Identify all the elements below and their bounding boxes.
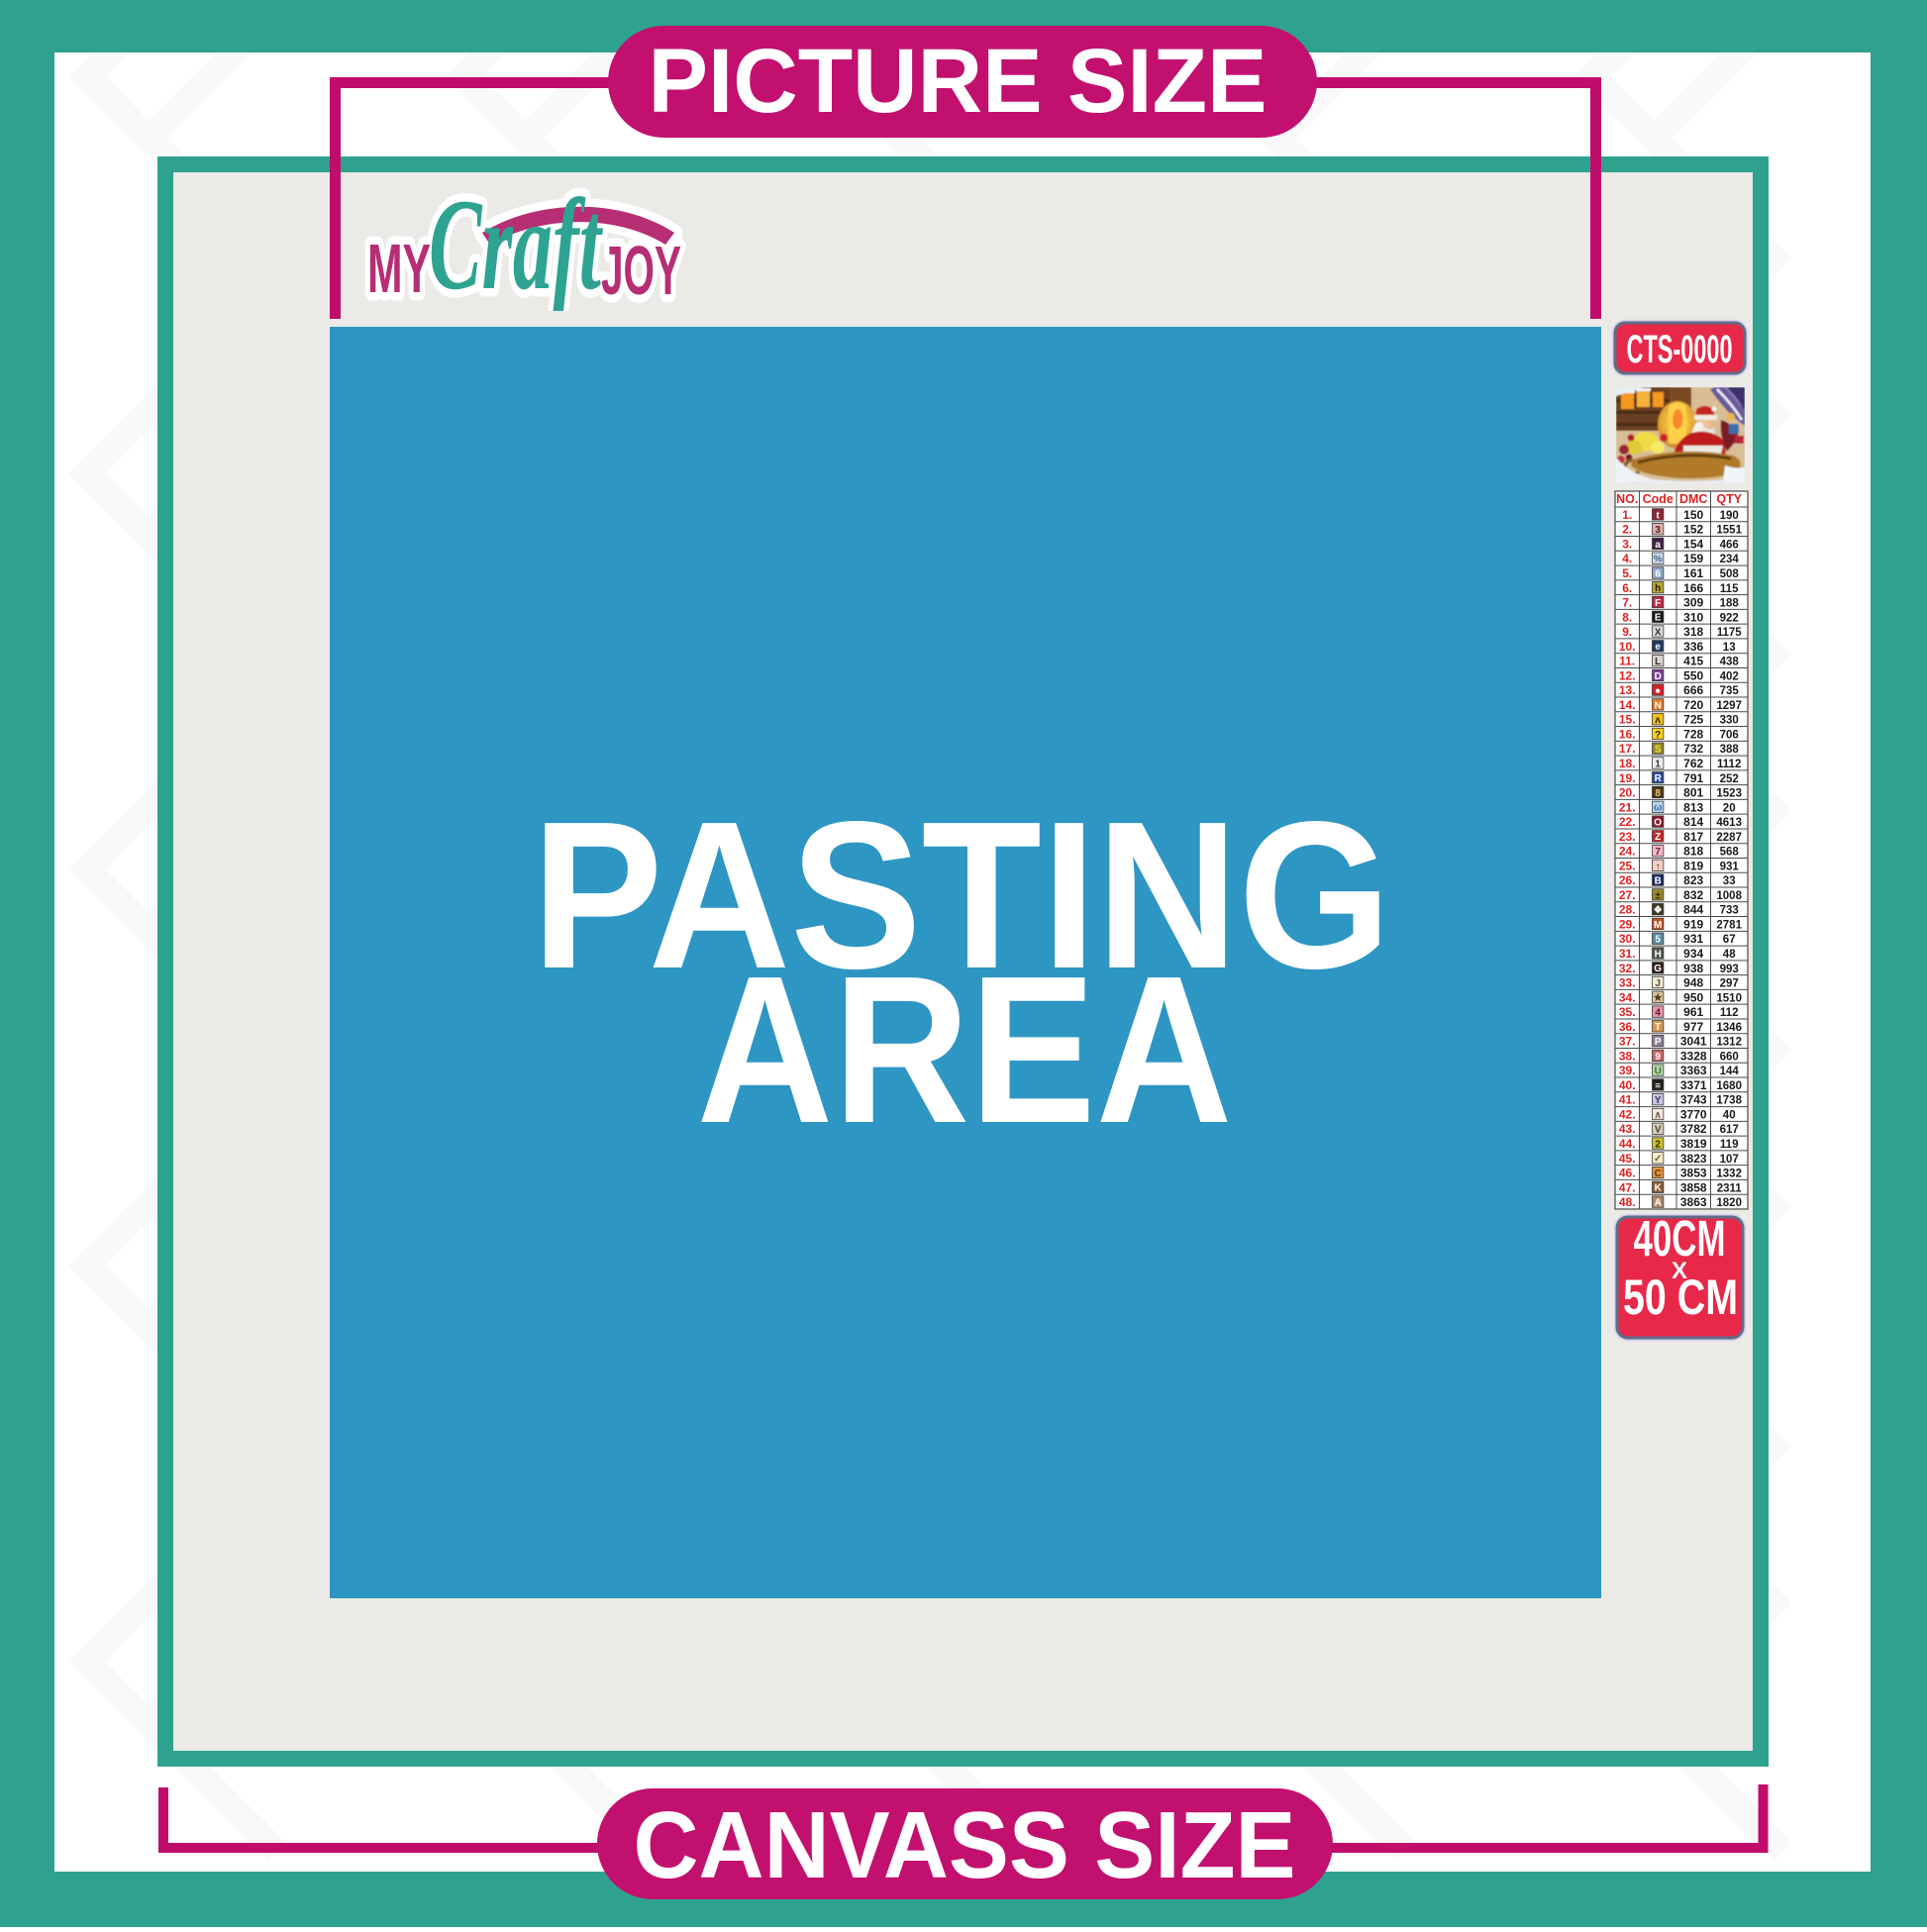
svg-text:818: 818 (1683, 845, 1703, 859)
svg-text:e: e (1655, 642, 1661, 653)
svg-text:20: 20 (1723, 802, 1736, 814)
svg-text:MY: MY (367, 230, 431, 307)
svg-text:1820: 1820 (1716, 1197, 1742, 1209)
svg-text:3770: 3770 (1680, 1108, 1707, 1122)
svg-text:Z: Z (1655, 832, 1661, 843)
svg-text:1008: 1008 (1716, 890, 1742, 902)
svg-text:P: P (1655, 1037, 1662, 1048)
svg-text:T: T (1655, 1022, 1661, 1033)
svg-text:297: 297 (1720, 978, 1739, 990)
svg-text:38.: 38. (1619, 1049, 1636, 1063)
svg-text:Code: Code (1643, 492, 1673, 506)
svg-text:568: 568 (1720, 847, 1740, 859)
svg-text:40.: 40. (1619, 1078, 1636, 1092)
svg-text:814: 814 (1683, 815, 1703, 829)
svg-text:3371: 3371 (1680, 1078, 1707, 1092)
svg-text:310: 310 (1683, 610, 1703, 624)
svg-text:Y: Y (1655, 1095, 1662, 1106)
svg-text:3.: 3. (1622, 537, 1632, 551)
svg-text:725: 725 (1683, 713, 1703, 727)
svg-text:3328: 3328 (1680, 1049, 1707, 1063)
svg-text:159: 159 (1683, 552, 1703, 565)
svg-text:2: 2 (1655, 1139, 1661, 1150)
svg-text:30.: 30. (1619, 932, 1636, 946)
svg-text:G: G (1654, 964, 1662, 974)
svg-text:6: 6 (1655, 568, 1661, 579)
svg-text:48: 48 (1723, 949, 1736, 961)
svg-text:4613: 4613 (1716, 817, 1742, 829)
svg-text:1332: 1332 (1716, 1169, 1742, 1180)
svg-text:801: 801 (1683, 786, 1703, 800)
svg-text:44.: 44. (1619, 1137, 1636, 1151)
svg-text:10.: 10. (1619, 640, 1636, 654)
svg-text:617: 617 (1720, 1124, 1739, 1136)
svg-text:U: U (1655, 1067, 1662, 1077)
svg-text:813: 813 (1683, 800, 1703, 814)
svg-text:Craft: Craft (429, 171, 603, 317)
svg-text:45.: 45. (1619, 1152, 1636, 1166)
svg-text:17.: 17. (1619, 742, 1636, 756)
svg-text:43.: 43. (1619, 1122, 1636, 1136)
svg-text:388: 388 (1720, 744, 1740, 756)
svg-text:≡: ≡ (1655, 1080, 1661, 1091)
svg-text:AREA: AREA (697, 932, 1233, 1167)
svg-text:166: 166 (1683, 581, 1703, 595)
svg-text:8.: 8. (1622, 610, 1632, 624)
svg-text:37.: 37. (1619, 1035, 1636, 1049)
svg-text:6.: 6. (1622, 581, 1632, 595)
svg-text:1738: 1738 (1716, 1095, 1742, 1107)
svg-text:550: 550 (1683, 668, 1703, 682)
svg-text:31.: 31. (1619, 947, 1636, 961)
svg-text:D: D (1655, 671, 1662, 682)
svg-text:1551: 1551 (1716, 525, 1742, 537)
svg-text:%: % (1654, 555, 1663, 565)
svg-text:252: 252 (1720, 773, 1739, 785)
svg-text:14.: 14. (1619, 698, 1636, 712)
svg-text:67: 67 (1723, 934, 1736, 946)
svg-text:234: 234 (1720, 554, 1740, 565)
svg-text:N: N (1655, 700, 1662, 711)
svg-text:150: 150 (1683, 508, 1703, 522)
svg-text:★: ★ (1654, 993, 1663, 1004)
svg-text:✓: ✓ (1654, 1154, 1662, 1165)
svg-text:144: 144 (1720, 1066, 1740, 1077)
svg-text:5.: 5. (1622, 566, 1632, 580)
svg-text:3858: 3858 (1680, 1180, 1707, 1194)
svg-text:3863: 3863 (1680, 1195, 1707, 1209)
svg-text:309: 309 (1683, 596, 1703, 610)
svg-text:330: 330 (1720, 715, 1739, 727)
svg-text:3041: 3041 (1680, 1035, 1707, 1049)
svg-text:B: B (1655, 876, 1662, 887)
svg-text:415: 415 (1683, 655, 1703, 668)
svg-text:ʌ: ʌ (1655, 715, 1661, 726)
svg-text:3782: 3782 (1680, 1122, 1707, 1136)
svg-text:1346: 1346 (1716, 1022, 1742, 1034)
svg-text:934: 934 (1683, 947, 1703, 961)
svg-text:PICTURE SIZE: PICTURE SIZE (649, 31, 1268, 132)
svg-text:41.: 41. (1619, 1093, 1636, 1107)
svg-text:19.: 19. (1619, 771, 1636, 785)
svg-text:9: 9 (1655, 1052, 1661, 1063)
svg-text:23.: 23. (1619, 830, 1636, 844)
svg-text:660: 660 (1720, 1051, 1739, 1063)
svg-text:h: h (1655, 583, 1661, 594)
svg-text:2287: 2287 (1716, 832, 1742, 844)
svg-text:47.: 47. (1619, 1180, 1636, 1194)
svg-text:33: 33 (1723, 875, 1736, 887)
svg-text:2.: 2. (1622, 523, 1632, 537)
svg-text:∧: ∧ (1655, 1110, 1662, 1121)
svg-text:E: E (1655, 613, 1662, 624)
svg-text:CANVASS SIZE: CANVASS SIZE (634, 1792, 1296, 1898)
svg-text:39.: 39. (1619, 1064, 1636, 1077)
svg-text:13: 13 (1723, 642, 1736, 654)
svg-text:154: 154 (1683, 537, 1703, 551)
svg-text:28.: 28. (1619, 903, 1636, 917)
svg-text:8: 8 (1655, 788, 1661, 799)
svg-text:706: 706 (1720, 729, 1739, 741)
svg-text:J: J (1655, 978, 1661, 989)
svg-text:119: 119 (1720, 1139, 1739, 1151)
svg-text:29.: 29. (1619, 918, 1636, 932)
svg-text:M: M (1654, 920, 1662, 931)
svg-text:666: 666 (1683, 683, 1703, 697)
svg-text:↑: ↑ (1656, 862, 1661, 872)
svg-text:115: 115 (1720, 583, 1739, 595)
svg-text:V: V (1655, 1125, 1662, 1136)
svg-text:9.: 9. (1622, 625, 1632, 639)
svg-text:7: 7 (1655, 847, 1661, 858)
svg-text:1297: 1297 (1716, 700, 1742, 712)
svg-text:762: 762 (1683, 757, 1703, 770)
svg-text:±: ± (1655, 890, 1661, 901)
svg-text:728: 728 (1683, 727, 1703, 741)
svg-text:950: 950 (1683, 990, 1703, 1004)
svg-text:42.: 42. (1619, 1108, 1636, 1122)
svg-text:34.: 34. (1619, 990, 1636, 1004)
svg-text:977: 977 (1683, 1020, 1703, 1034)
svg-text:1523: 1523 (1716, 788, 1742, 800)
svg-text:4: 4 (1655, 1008, 1661, 1019)
svg-text:12.: 12. (1619, 668, 1636, 682)
svg-text:S: S (1655, 745, 1662, 756)
svg-text:L: L (1655, 657, 1661, 667)
svg-text:33.: 33. (1619, 976, 1636, 990)
svg-text:32.: 32. (1619, 962, 1636, 975)
svg-text:735: 735 (1720, 685, 1740, 697)
svg-text:K: K (1655, 1183, 1663, 1194)
svg-text:F: F (1655, 598, 1661, 609)
svg-text:CTS-0000: CTS-0000 (1627, 328, 1733, 371)
svg-text:24.: 24. (1619, 845, 1636, 859)
svg-text:1112: 1112 (1717, 759, 1741, 770)
svg-text:48.: 48. (1619, 1195, 1636, 1209)
svg-text:46.: 46. (1619, 1167, 1636, 1180)
svg-text:3363: 3363 (1680, 1064, 1707, 1077)
svg-text:318: 318 (1683, 625, 1703, 639)
svg-text:1312: 1312 (1716, 1037, 1742, 1049)
svg-text:●: ● (1655, 686, 1661, 697)
svg-text:107: 107 (1720, 1154, 1739, 1166)
svg-text:3853: 3853 (1680, 1167, 1707, 1180)
svg-text:1680: 1680 (1716, 1080, 1742, 1092)
svg-text:931: 931 (1720, 861, 1740, 872)
svg-text:817: 817 (1683, 830, 1703, 844)
svg-text:18.: 18. (1619, 757, 1636, 770)
svg-text:2781: 2781 (1716, 920, 1742, 932)
svg-text:O: O (1654, 818, 1662, 829)
svg-text:919: 919 (1683, 918, 1703, 932)
svg-text:❖: ❖ (1654, 905, 1663, 916)
svg-text:ω: ω (1654, 803, 1663, 814)
svg-text:993: 993 (1720, 964, 1739, 975)
svg-text:336: 336 (1683, 640, 1703, 654)
svg-text:3743: 3743 (1680, 1093, 1707, 1107)
svg-text:36.: 36. (1619, 1020, 1636, 1034)
svg-text:720: 720 (1683, 698, 1703, 712)
svg-text:QTY: QTY (1716, 492, 1742, 506)
svg-text:35.: 35. (1619, 1005, 1636, 1019)
svg-text:732: 732 (1683, 742, 1703, 756)
svg-text:823: 823 (1683, 873, 1703, 887)
svg-text:21.: 21. (1619, 800, 1636, 814)
svg-text:819: 819 (1683, 859, 1703, 872)
svg-text:DMC: DMC (1679, 492, 1707, 506)
svg-text:a: a (1655, 540, 1661, 551)
svg-text:161: 161 (1683, 566, 1703, 580)
svg-text:50 CM: 50 CM (1623, 1270, 1738, 1325)
svg-text:25.: 25. (1619, 859, 1636, 872)
svg-text:2311: 2311 (1717, 1182, 1743, 1194)
svg-text:NO.: NO. (1616, 492, 1638, 506)
svg-text:R: R (1655, 773, 1663, 784)
svg-text:A: A (1655, 1198, 1662, 1209)
svg-text:1.: 1. (1622, 508, 1632, 522)
svg-text:26.: 26. (1619, 873, 1636, 887)
svg-text:922: 922 (1720, 612, 1739, 624)
svg-text:20.: 20. (1619, 786, 1636, 800)
svg-text:27.: 27. (1619, 888, 1636, 902)
svg-text:22.: 22. (1619, 815, 1636, 829)
svg-text:7.: 7. (1622, 596, 1632, 610)
svg-text:438: 438 (1720, 657, 1740, 668)
svg-text:188: 188 (1720, 598, 1740, 610)
svg-text:152: 152 (1683, 523, 1703, 537)
svg-text:1: 1 (1655, 759, 1661, 769)
svg-text:791: 791 (1683, 771, 1703, 785)
svg-text:402: 402 (1720, 670, 1739, 682)
svg-text:3819: 3819 (1680, 1137, 1707, 1151)
svg-text:3823: 3823 (1680, 1152, 1707, 1166)
svg-text:832: 832 (1683, 888, 1703, 902)
svg-text:931: 931 (1683, 932, 1703, 946)
svg-text:844: 844 (1683, 903, 1703, 917)
svg-text:112: 112 (1720, 1007, 1739, 1019)
svg-text:JOY: JOY (601, 232, 681, 309)
svg-text:733: 733 (1720, 905, 1739, 917)
svg-text:948: 948 (1683, 976, 1703, 990)
svg-text:938: 938 (1683, 962, 1703, 975)
svg-text:15.: 15. (1619, 713, 1636, 727)
svg-text:13.: 13. (1619, 683, 1636, 697)
svg-text:1175: 1175 (1717, 627, 1743, 639)
svg-text:508: 508 (1720, 568, 1740, 580)
svg-text:190: 190 (1720, 510, 1739, 522)
svg-text:H: H (1655, 949, 1662, 960)
svg-text:466: 466 (1720, 539, 1739, 551)
svg-text:40: 40 (1723, 1110, 1736, 1122)
svg-text:X: X (1655, 628, 1662, 639)
svg-text:4.: 4. (1622, 552, 1632, 565)
svg-text:1510: 1510 (1716, 992, 1742, 1004)
svg-text:16.: 16. (1619, 727, 1636, 741)
svg-text:C: C (1655, 1169, 1662, 1179)
svg-text:11.: 11. (1619, 655, 1635, 668)
svg-text:3: 3 (1655, 525, 1661, 536)
svg-text:5: 5 (1655, 935, 1661, 946)
svg-text:?: ? (1655, 730, 1661, 741)
svg-text:961: 961 (1683, 1005, 1703, 1019)
